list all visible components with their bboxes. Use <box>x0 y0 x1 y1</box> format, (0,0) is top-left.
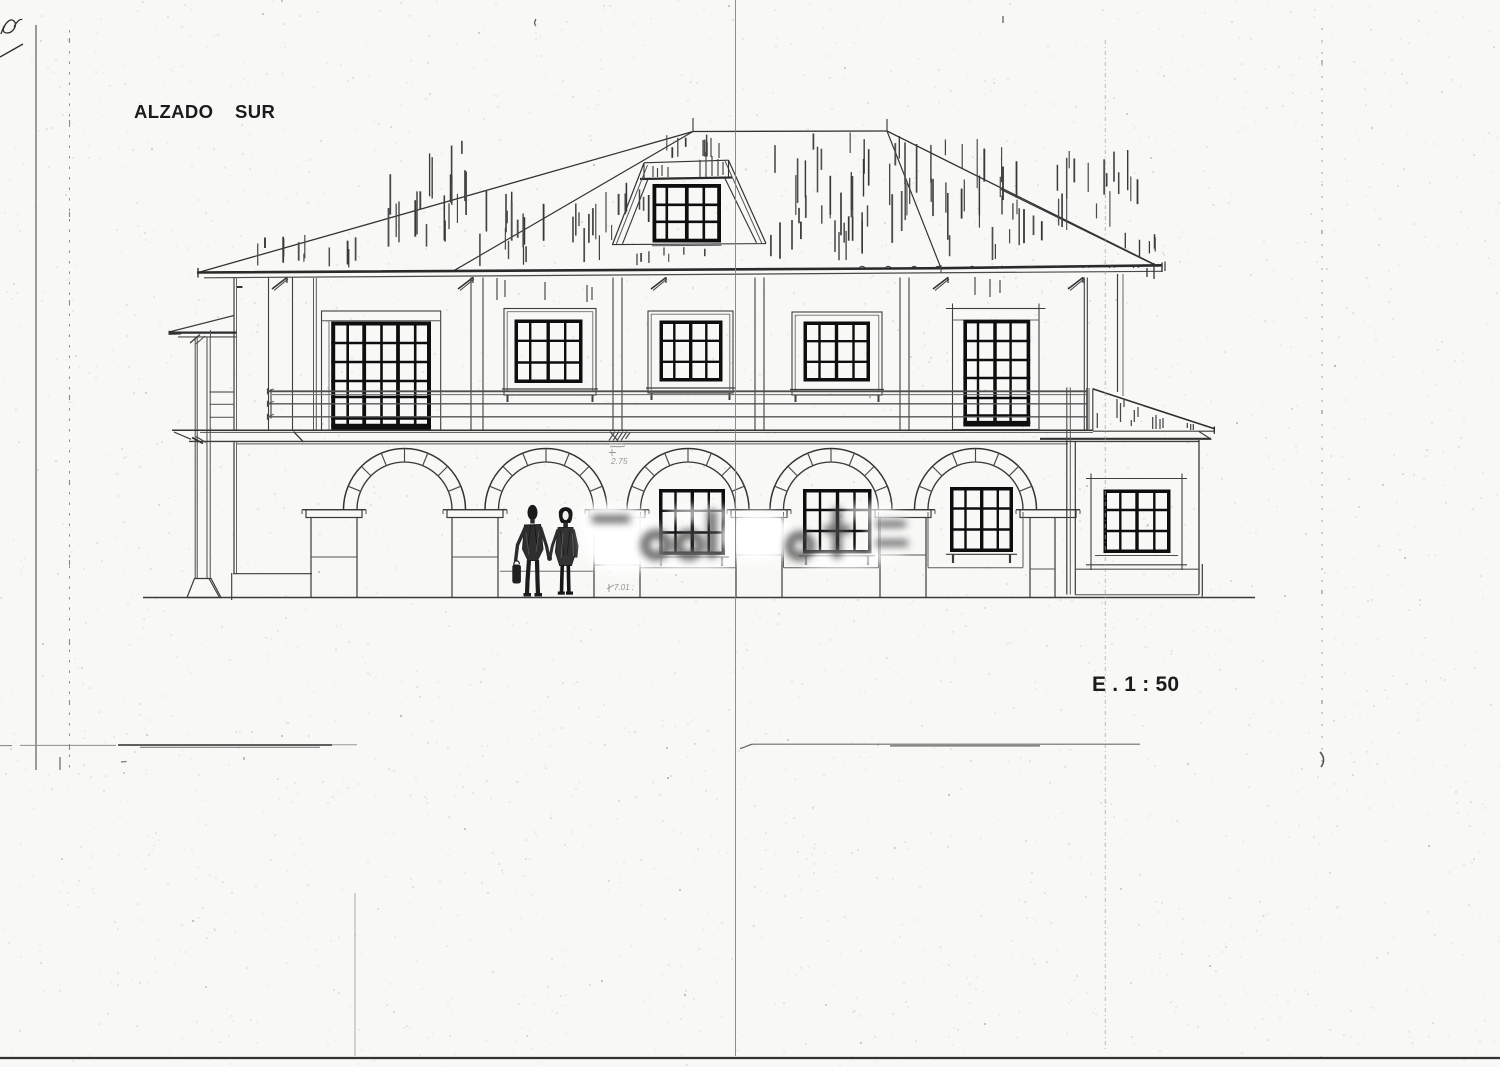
svg-text:SUR: SUR <box>235 101 275 122</box>
svg-text:ALZADO: ALZADO <box>134 101 213 122</box>
svg-text:7.01 :: 7.01 : <box>614 583 634 592</box>
svg-text:2.75: 2.75 <box>610 456 628 466</box>
